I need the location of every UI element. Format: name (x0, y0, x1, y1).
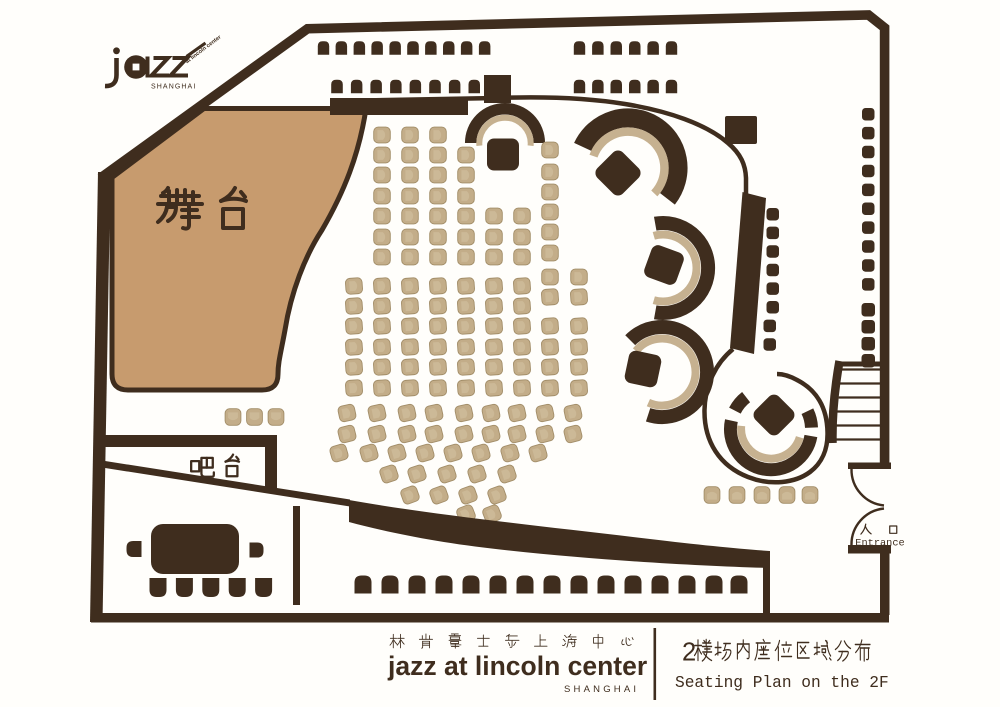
svg-text:jazz at lincoln center: jazz at lincoln center (387, 651, 647, 681)
svg-text:SHANGHAI: SHANGHAI (151, 84, 196, 91)
svg-text:SHANGHAI: SHANGHAI (564, 684, 639, 695)
svg-text:2: 2 (682, 639, 696, 667)
svg-text:Seating Plan on the 2F: Seating Plan on the 2F (675, 674, 889, 692)
svg-text:Entrance: Entrance (855, 538, 904, 550)
